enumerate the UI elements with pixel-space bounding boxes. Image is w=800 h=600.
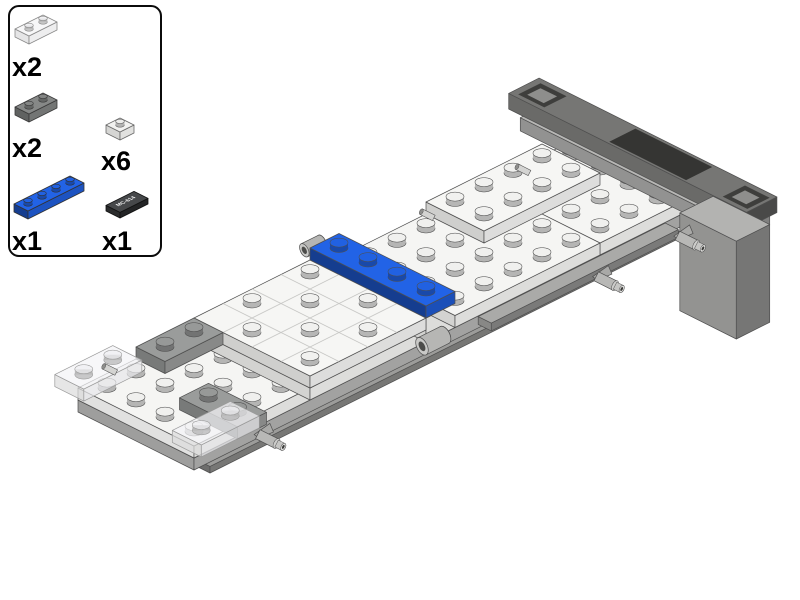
part-shape xyxy=(106,118,134,140)
icon-dark-gray-plate-1x2 xyxy=(15,93,57,122)
part-shape xyxy=(15,15,57,44)
model-render: MC-614 xyxy=(0,0,800,600)
part-shape xyxy=(14,176,84,219)
lego-instruction-page: MC-614 x2 x2 x6 x1 x1 xyxy=(0,0,800,600)
icon-blue-plate-1x4 xyxy=(14,176,84,219)
chassis-assembly xyxy=(55,78,777,473)
part-shape xyxy=(15,93,57,122)
part-shape xyxy=(106,191,148,218)
bumper-support-block xyxy=(680,196,770,339)
icon-black-license-tile: MC-614 xyxy=(106,191,148,218)
icon-white-plate-1x1 xyxy=(106,118,134,140)
icon-trans-clear-plate-1x2 xyxy=(15,15,57,44)
